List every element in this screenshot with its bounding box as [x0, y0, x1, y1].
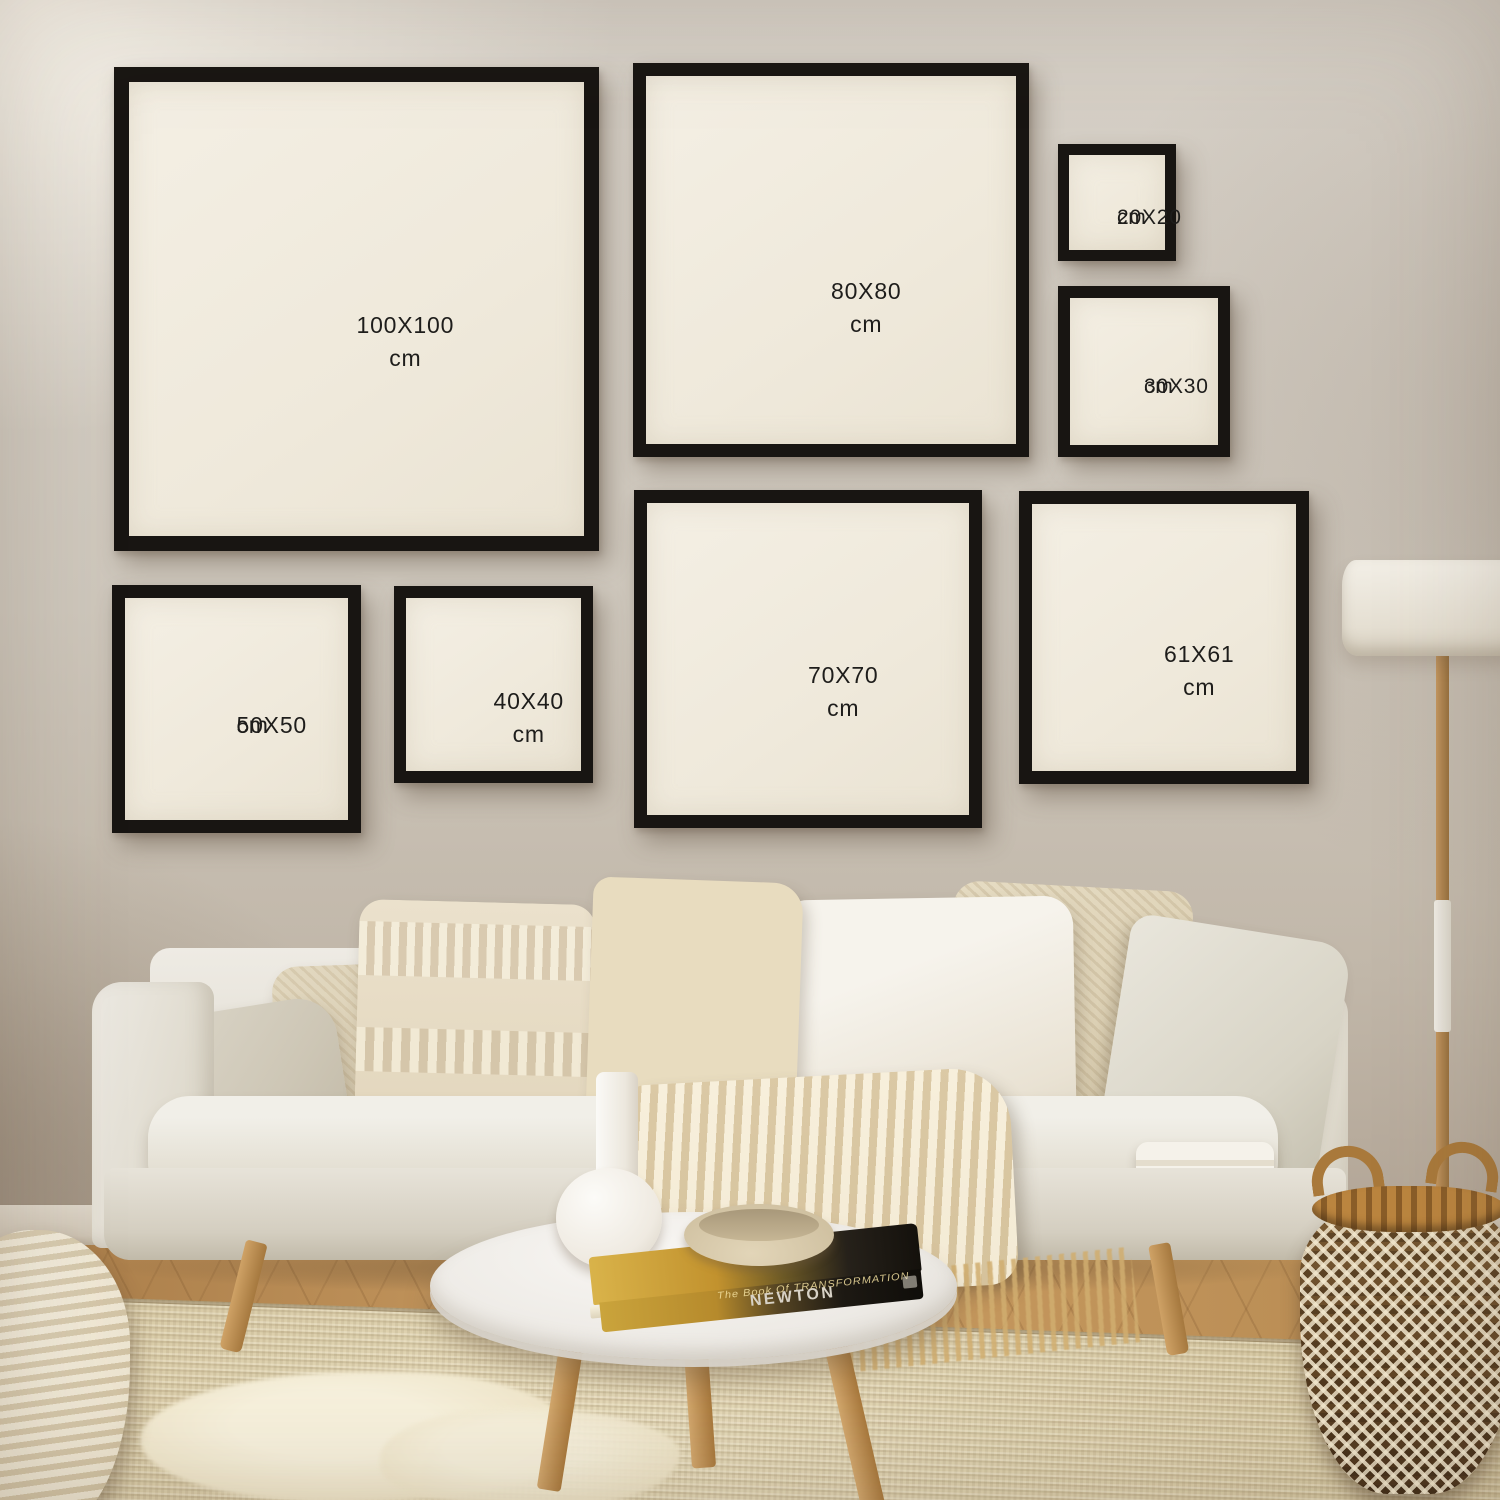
- frame-canvas: 30X30 cm: [1070, 298, 1218, 445]
- lamp-pole-band: [1434, 900, 1451, 1032]
- bowl-inner: [699, 1209, 819, 1241]
- frame-61x61: 61X61 cm: [1019, 491, 1309, 784]
- frame-canvas: 20X20 cm: [1069, 155, 1165, 250]
- frame-canvas: 80X80 cm: [646, 76, 1016, 444]
- frame-canvas: 70X70 cm: [647, 503, 969, 815]
- frame-80x80: 80X80 cm: [633, 63, 1029, 457]
- publisher-logo-icon: [902, 1275, 917, 1288]
- frame-canvas: 61X61 cm: [1032, 504, 1296, 771]
- frame-canvas: 100X100 cm: [129, 82, 584, 536]
- sheepskin-throw: [380, 1408, 680, 1500]
- frame-20x20: 20X20 cm: [1058, 144, 1176, 261]
- frame-canvas: 50X50 cm: [125, 598, 348, 820]
- lamp-shade: [1342, 560, 1500, 656]
- frame-30x30: 30X30 cm: [1058, 286, 1230, 457]
- living-room-size-guide-scene: 100X100 cm 80X80 cm 20X20 cm 30X30 cm: [0, 0, 1500, 1500]
- frame-50x50: 50X50 cm: [112, 585, 361, 833]
- frame-canvas: 40X40 cm: [406, 598, 581, 771]
- seagrass-basket: [1300, 1196, 1500, 1494]
- bowl: [684, 1204, 834, 1266]
- frame-70x70: 70X70 cm: [634, 490, 982, 828]
- frame-40x40: 40X40 cm: [394, 586, 593, 783]
- basket-rim: [1312, 1186, 1500, 1232]
- frame-100x100: 100X100 cm: [114, 67, 599, 551]
